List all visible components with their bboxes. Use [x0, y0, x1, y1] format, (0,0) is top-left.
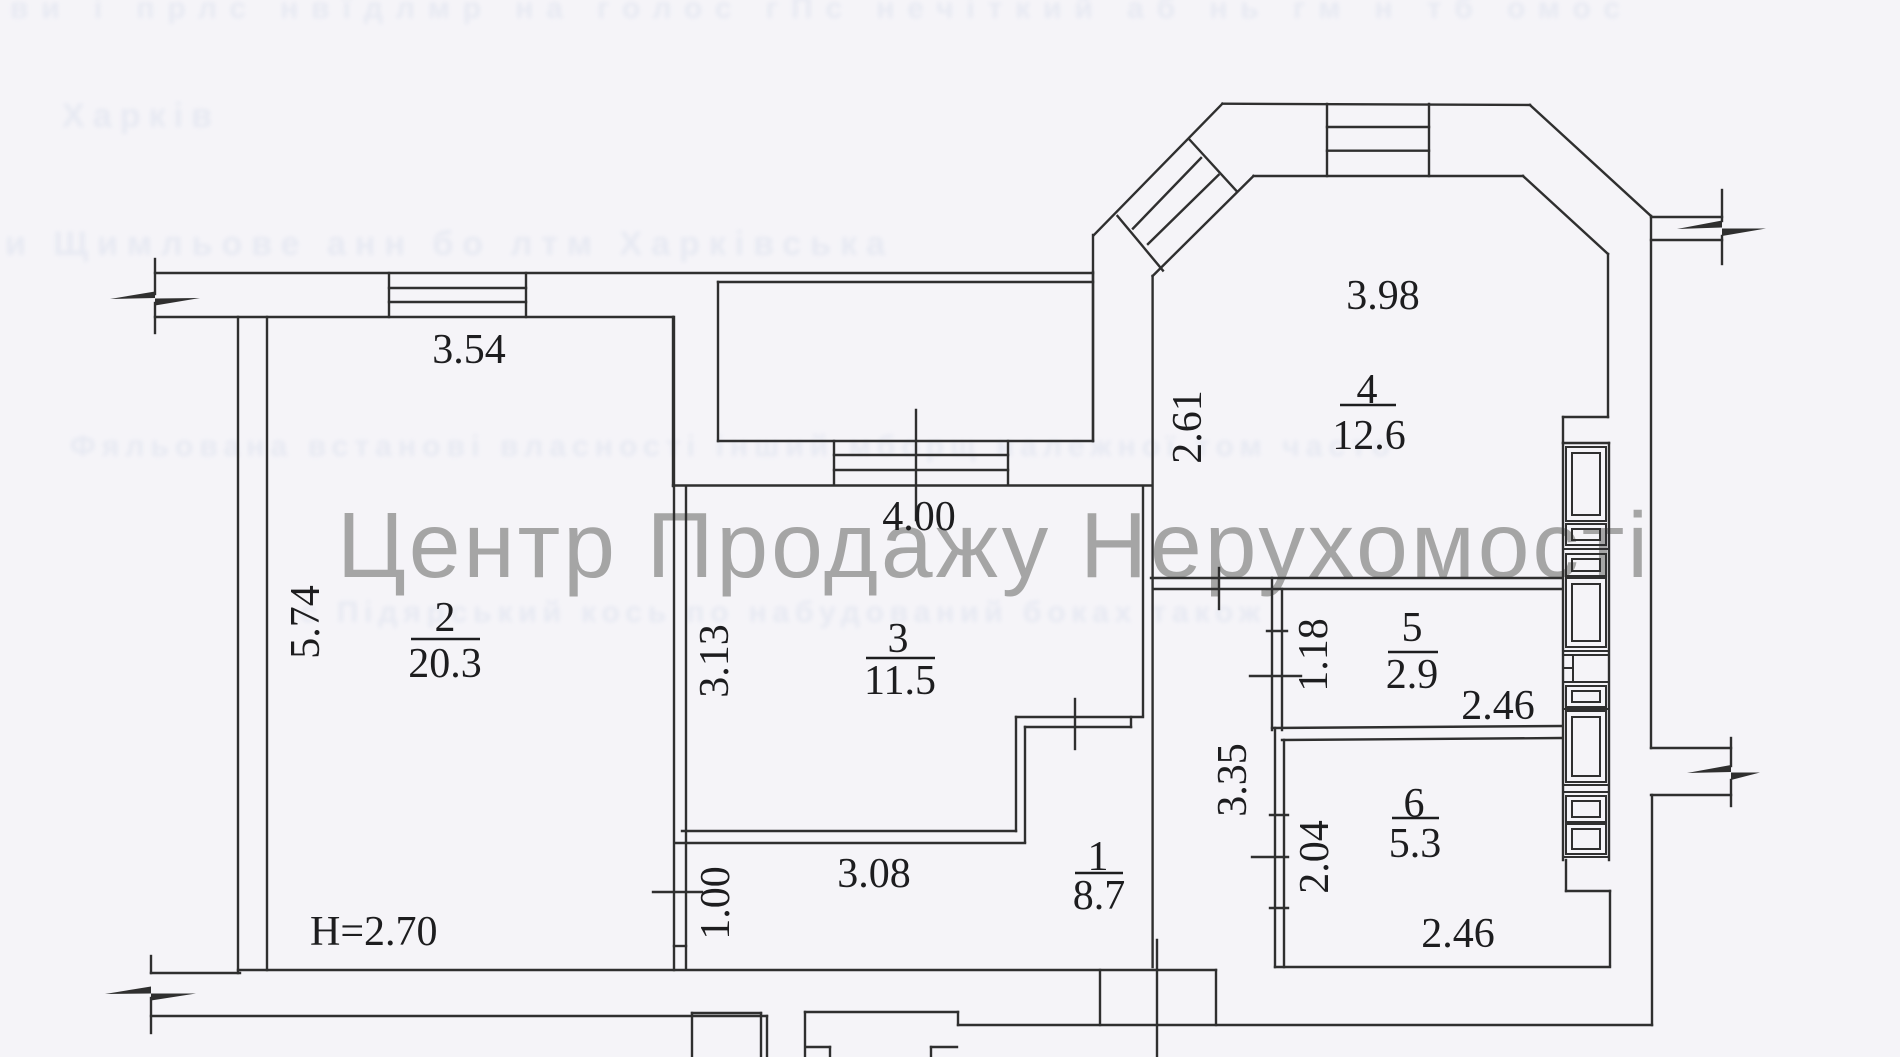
- svg-text:2.46: 2.46: [1421, 911, 1495, 957]
- svg-text:3.13: 3.13: [692, 624, 738, 698]
- svg-text:2.46: 2.46: [1461, 683, 1535, 729]
- svg-text:3.98: 3.98: [1346, 273, 1420, 319]
- svg-text:5.3: 5.3: [1389, 821, 1442, 867]
- svg-text:1.00: 1.00: [693, 866, 739, 940]
- svg-text:ви і прлс нвїдлмр на голос гПс: ви і прлс нвїдлмр на голос гПс нечіткий …: [10, 0, 1620, 25]
- svg-text:2.9: 2.9: [1386, 652, 1439, 698]
- svg-text:11.5: 11.5: [864, 658, 936, 704]
- svg-text:2.61: 2.61: [1165, 390, 1211, 464]
- svg-text:3.35: 3.35: [1210, 743, 1256, 817]
- svg-text:2: 2: [435, 595, 456, 641]
- svg-text:H=2.70: H=2.70: [310, 909, 438, 955]
- svg-text:и Щимльове анн бо лтм Харківсь: и Щимльове анн бо лтм Харківська: [5, 225, 886, 263]
- svg-text:3.54: 3.54: [432, 327, 506, 373]
- svg-text:Центр Продажу Нерухомості: Центр Продажу Нерухомості: [337, 493, 1648, 597]
- svg-text:8.7: 8.7: [1073, 873, 1126, 919]
- svg-text:12.6: 12.6: [1332, 413, 1406, 459]
- svg-text:20.3: 20.3: [408, 641, 482, 687]
- svg-text:3: 3: [888, 616, 909, 662]
- svg-text:4.00: 4.00: [882, 494, 956, 540]
- svg-text:2.04: 2.04: [1292, 820, 1338, 894]
- svg-text:5.74: 5.74: [283, 585, 329, 659]
- svg-text:5: 5: [1402, 605, 1423, 651]
- svg-text:3.08: 3.08: [837, 851, 911, 897]
- svg-text:Харків: Харків: [62, 97, 212, 135]
- svg-text:1.18: 1.18: [1291, 618, 1337, 692]
